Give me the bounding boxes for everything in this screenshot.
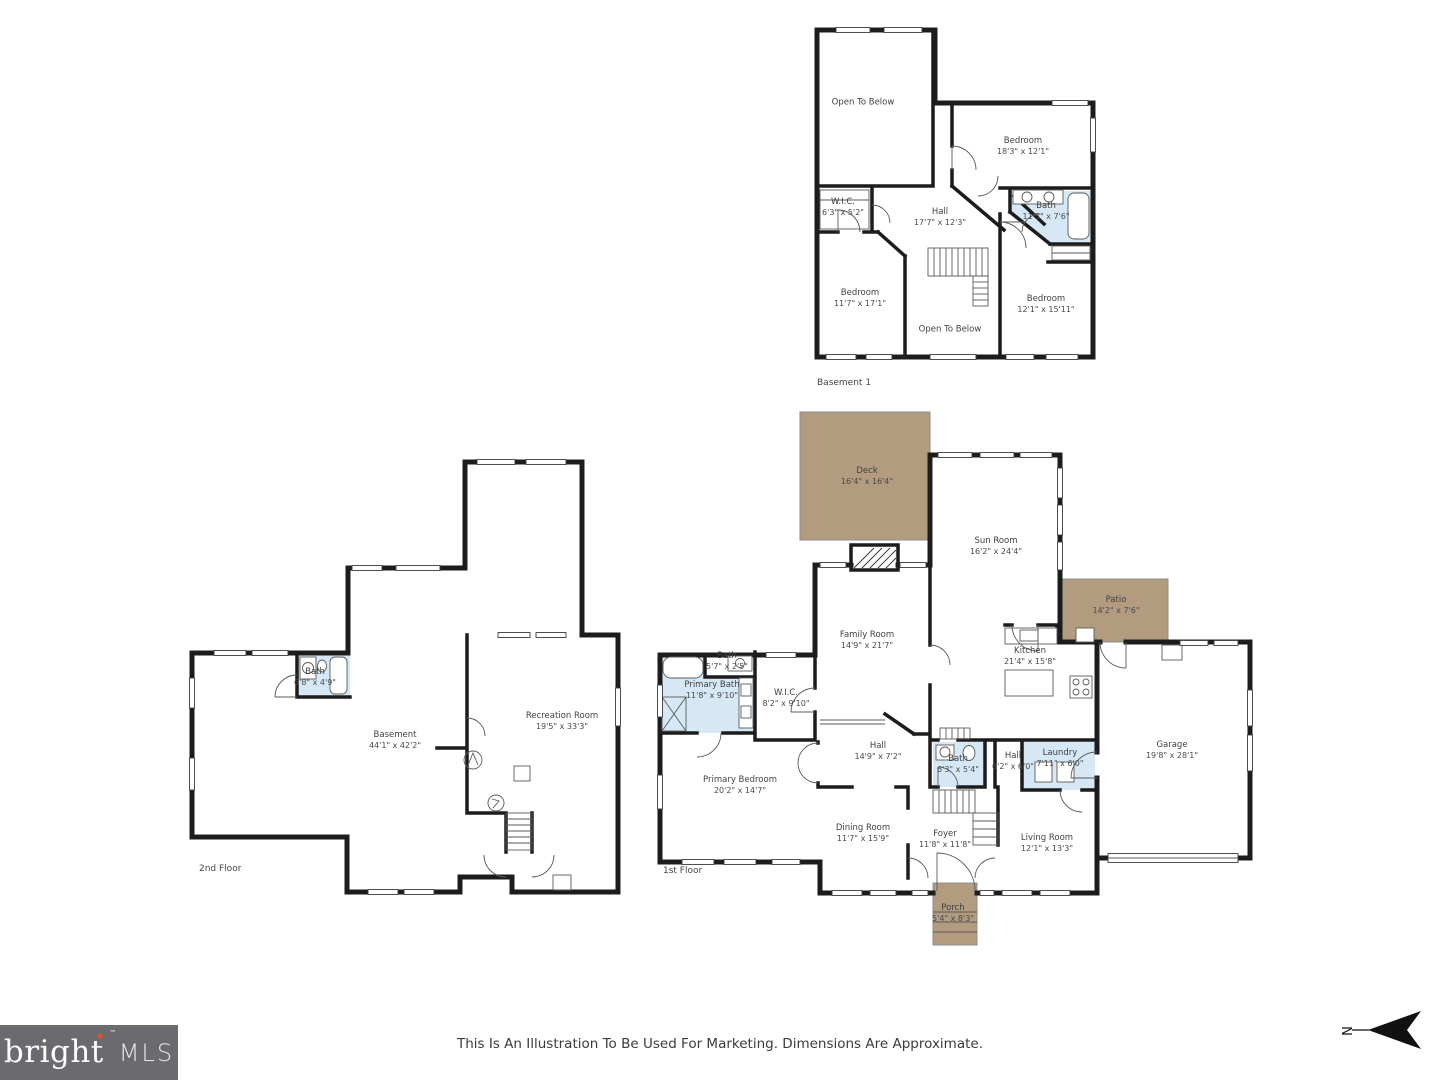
- stairs-icon: [928, 248, 988, 306]
- toilet-icon: [318, 660, 327, 672]
- floorplan-drawing: N: [0, 0, 1440, 1080]
- water-heater-mark: [468, 753, 478, 765]
- electrical-panel-icon: [488, 795, 504, 811]
- closet-shelving: [1052, 246, 1090, 260]
- disclaimer-text: This Is An Illustration To Be Used For M…: [0, 1036, 1440, 1052]
- kitchen-fixtures: [1005, 628, 1094, 698]
- garage-detail: [1108, 645, 1238, 863]
- floorplan-canvas: N Open To BelowBedroom18'3" x 12'1"W.I.C…: [0, 0, 1440, 1080]
- fireplace-icon: [851, 545, 898, 570]
- cased-opening: [820, 720, 885, 724]
- floorplan-1st-floor: [658, 412, 1253, 945]
- deck-area: [800, 412, 930, 540]
- utility-box: [1162, 645, 1182, 660]
- washer-icon: [1035, 762, 1052, 782]
- stairs-icon: [506, 813, 532, 850]
- utilities: [464, 751, 571, 890]
- bolt-mark: [492, 799, 499, 808]
- toilet-icon: [963, 746, 975, 761]
- stove-icon: [1070, 676, 1092, 698]
- vanity-icon: [1013, 190, 1063, 204]
- utility-box: [514, 766, 530, 781]
- windows: [190, 460, 621, 895]
- bathtub-icon: [663, 657, 703, 678]
- porch-area: [933, 883, 977, 945]
- floorplan-2nd-floor: [190, 460, 621, 895]
- bathtub-icon: [1068, 193, 1089, 239]
- utility-box: [553, 875, 571, 890]
- fridge-icon: [1076, 628, 1094, 642]
- bathtub-icon: [330, 657, 347, 694]
- door-arcs: [275, 675, 554, 877]
- closet-shelving: [820, 190, 869, 229]
- compass-letter: N: [1338, 1026, 1353, 1036]
- bright-mls-logo: bright✦™ MLS: [0, 1025, 178, 1080]
- exterior-walls: [192, 462, 618, 892]
- floorplan-basement1: [817, 28, 1096, 360]
- island: [1005, 670, 1053, 696]
